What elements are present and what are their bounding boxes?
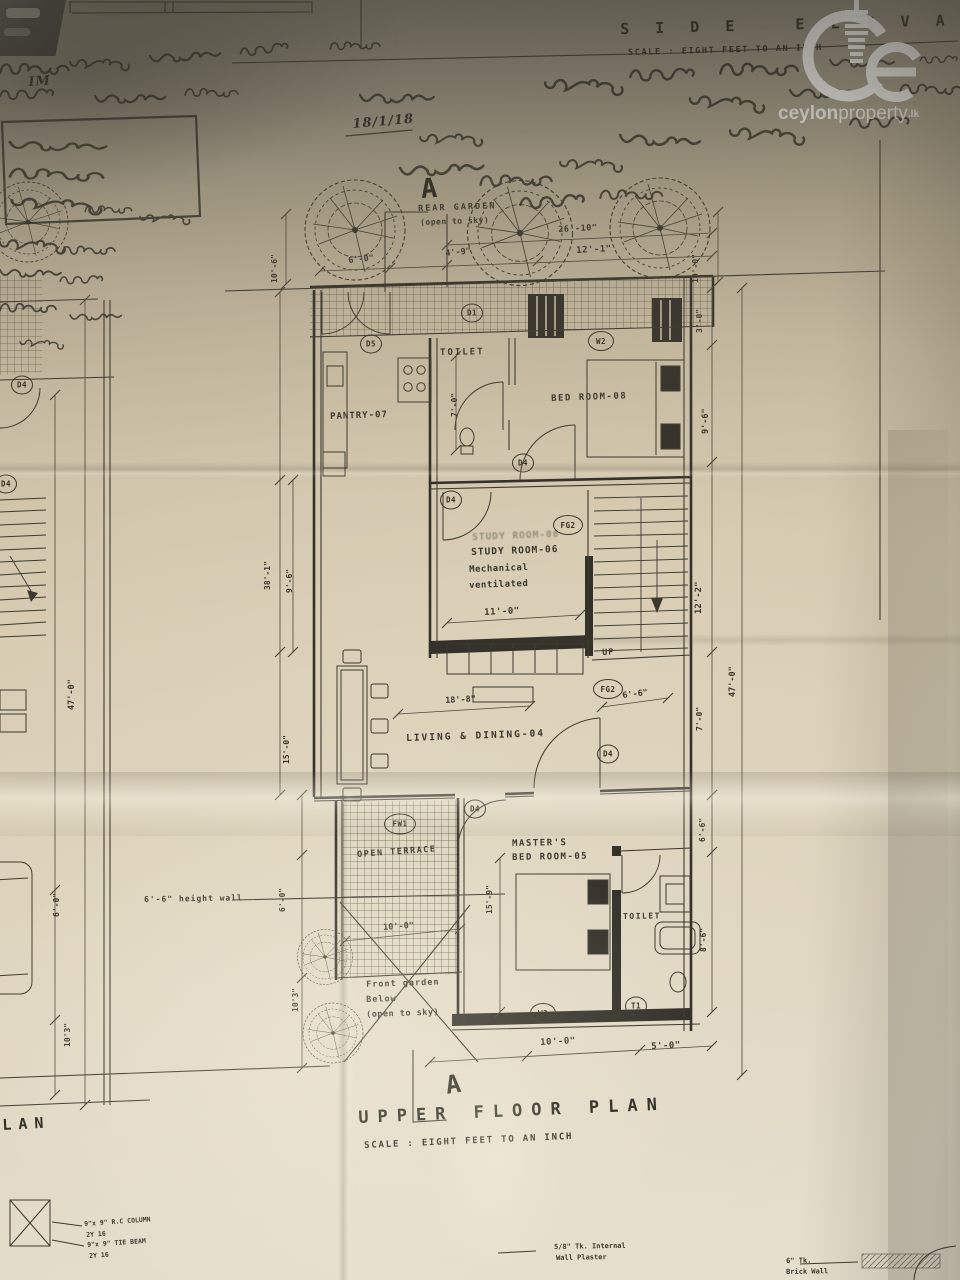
- marker-fw1: FW1: [384, 814, 416, 835]
- watermark-tld: .lk: [908, 109, 919, 120]
- watermark-logo-icon: [770, 0, 960, 110]
- marker-d5: D5: [360, 335, 382, 354]
- watermark: ceylonproperty.lk: [770, 0, 960, 140]
- marker-w3: W3: [530, 1003, 556, 1023]
- marker-d4: D4: [597, 745, 619, 764]
- marker-d4: D4: [440, 491, 462, 510]
- reference-markers: D5D1W2D4D4FG2FG2D4D4FW1W3T1D4D4: [0, 0, 960, 1280]
- marker-fg2: FG2: [553, 515, 583, 535]
- marker-t1: T1: [625, 997, 647, 1016]
- marker-d4: D4: [11, 376, 33, 395]
- watermark-bold: ceylon: [778, 103, 838, 124]
- watermark-light: property: [838, 103, 908, 124]
- blueprint-photo: S I D E E L E V A T I O NSCALE : EIGHT F…: [0, 0, 960, 1280]
- marker-d4: D4: [512, 454, 534, 473]
- marker-d1: D1: [461, 304, 483, 323]
- marker-d4: D4: [464, 800, 486, 819]
- marker-fg2: FG2: [593, 679, 623, 699]
- marker-w2: W2: [588, 331, 614, 351]
- tower-icon: [845, 0, 868, 63]
- corner-object: [0, 0, 66, 56]
- watermark-brand: ceylonproperty.lk: [778, 103, 919, 125]
- marker-d4: D4: [0, 475, 17, 494]
